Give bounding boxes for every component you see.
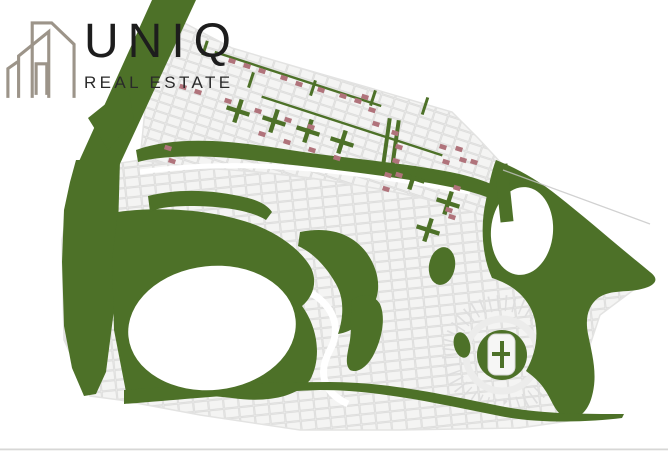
brand-tagline: REAL ESTATE xyxy=(84,74,240,91)
logo-text-block: UNIQ REAL ESTATE xyxy=(84,12,240,91)
buildings-icon xyxy=(4,12,76,100)
uniq-logo: UNIQ REAL ESTATE xyxy=(4,12,240,100)
image-bottom-edge xyxy=(0,449,668,451)
brand-name: UNIQ xyxy=(84,18,240,66)
ring-inner-cluster xyxy=(488,334,515,375)
real-estate-masterplan-screenshot: UNIQ REAL ESTATE xyxy=(0,0,668,452)
